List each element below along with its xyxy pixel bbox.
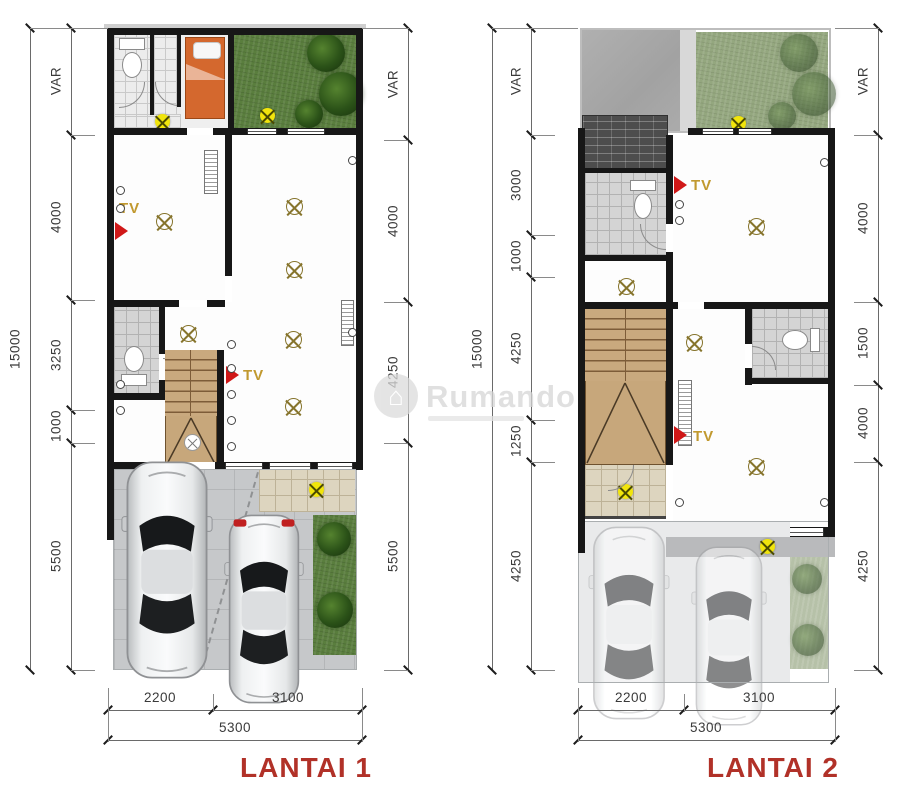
dim-p1-right-line	[408, 28, 409, 670]
dim-label: 4000	[49, 201, 64, 233]
plan-title-lantai-1: LANTAI 1	[240, 752, 372, 784]
dim-extension	[71, 670, 95, 671]
dim-p1-bottom-parts-line	[108, 710, 362, 711]
dim-extension	[362, 688, 363, 742]
dim-label: 5500	[386, 540, 401, 572]
dim-extension	[531, 670, 555, 671]
dim-p2-bottom-total-line	[578, 740, 835, 741]
dim-p1-bottom-total-line	[108, 740, 362, 741]
dim-extension	[531, 462, 555, 463]
dim-label: 5300	[219, 720, 251, 735]
dim-label: 3100	[743, 690, 775, 705]
dim-label: 3000	[509, 169, 524, 201]
dim-p1-left-line	[71, 28, 72, 670]
dim-p2-bottom-parts-line	[578, 710, 835, 711]
dim-label: 4250	[856, 550, 871, 582]
floor-plan-sheet: ⌂ Rumando	[0, 0, 915, 800]
dim-extension	[835, 688, 836, 742]
dim-label: 3250	[49, 339, 64, 371]
dim-extension	[854, 385, 878, 386]
dim-extension	[384, 670, 408, 671]
dim-label: VAR	[49, 67, 64, 95]
dim-p2-overall-line	[492, 28, 493, 670]
dim-label: 15000	[470, 329, 485, 369]
dim-label: 1250	[509, 425, 524, 457]
plan-title-lantai-2: LANTAI 2	[707, 752, 839, 784]
dim-label: 4250	[509, 332, 524, 364]
dim-extension	[30, 28, 108, 29]
dim-label: 4000	[386, 205, 401, 237]
dim-extension	[531, 235, 555, 236]
dim-extension	[531, 420, 555, 421]
dim-label: 4250	[509, 550, 524, 582]
dim-extension	[108, 688, 109, 742]
dim-extension	[684, 694, 685, 712]
dim-extension	[492, 28, 578, 29]
dim-label: 2200	[144, 690, 176, 705]
dim-label: 4250	[386, 356, 401, 388]
dim-label: VAR	[509, 67, 524, 95]
dim-extension	[384, 140, 408, 141]
dim-extension	[213, 694, 214, 712]
dim-extension	[578, 688, 579, 742]
dim-extension	[71, 135, 95, 136]
dim-label: 1000	[49, 410, 64, 442]
dim-label: 5300	[690, 720, 722, 735]
dim-label: 2200	[615, 690, 647, 705]
dim-extension	[835, 28, 879, 29]
dim-label: 1000	[509, 240, 524, 272]
dim-label: 1500	[856, 327, 871, 359]
dim-label: VAR	[386, 70, 401, 98]
dim-label: 5500	[49, 540, 64, 572]
dim-extension	[854, 670, 878, 671]
dim-extension	[71, 300, 95, 301]
dim-label: 4000	[856, 407, 871, 439]
dim-label: 15000	[8, 329, 23, 369]
dimension-layer: 15000VAR4000325010005500VAR4000425055001…	[0, 0, 915, 800]
dim-p2-left-line	[531, 28, 532, 670]
dim-extension	[362, 28, 409, 29]
dim-extension	[384, 302, 408, 303]
dim-label: 4000	[856, 202, 871, 234]
dim-p2-right-line	[878, 28, 879, 670]
dim-extension	[854, 302, 878, 303]
dim-extension	[854, 135, 878, 136]
dim-label: VAR	[856, 67, 871, 95]
dim-p1-overall-line	[30, 28, 31, 670]
dim-extension	[71, 410, 95, 411]
dim-extension	[531, 277, 555, 278]
dim-extension	[531, 135, 555, 136]
dim-extension	[71, 443, 95, 444]
dim-extension	[384, 443, 408, 444]
dim-label: 3100	[272, 690, 304, 705]
dim-extension	[854, 462, 878, 463]
